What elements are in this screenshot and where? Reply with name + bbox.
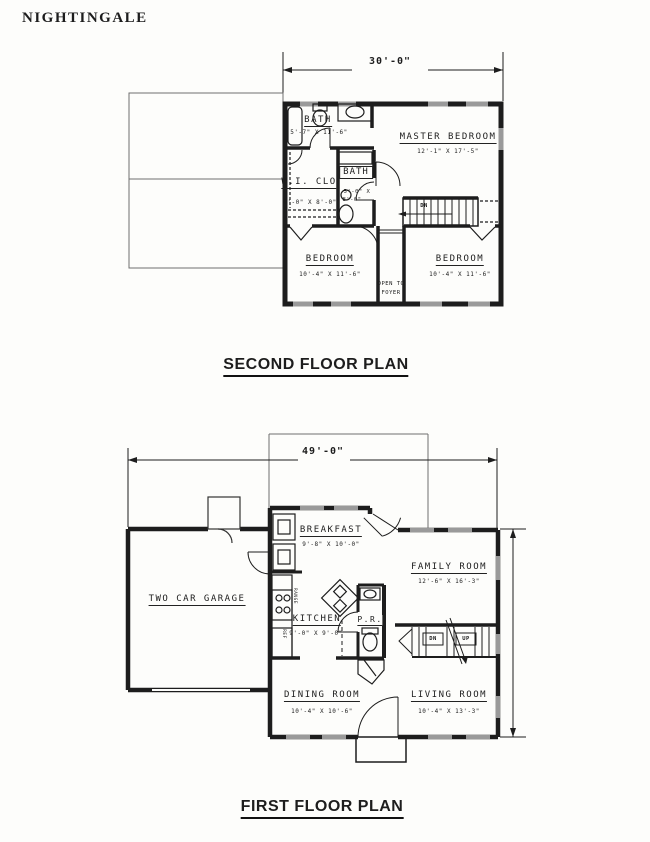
breakfast-label: BREAKFAST [300,525,362,537]
first-floor-width-dim-text: 49'-0" [302,446,344,457]
first-floor-width-dimension [128,448,497,528]
powder-room-label: P.R. [357,615,382,626]
bedroom-left-label: BEDROOM [306,254,354,266]
floor-plan-sheet: NIGHTINGALE 30'-0" BATH 5'-7" X 11'-6" M… [0,0,650,842]
dining-room-dim: 10'-4" X 10'-6" [291,708,353,715]
garage-vestibule [208,497,240,543]
garage-walls [128,529,270,690]
island-sink [322,580,359,617]
garage-entry-door [248,552,270,574]
upper-storey-outline [269,434,428,530]
breakfast-appliances [273,514,295,570]
family-room-dim: 12'-6" X 16'-3" [418,578,480,585]
family-room-label: FAMILY ROOM [411,562,487,574]
entry-closet [358,660,384,684]
master-bedroom-label: MASTER BEDROOM [400,132,497,144]
lower-roof-outline [129,93,283,268]
bedroom-right-label: BEDROOM [436,254,484,266]
stoop [356,737,406,762]
master-bedroom-dim: 12'-1" X 17'-5" [417,148,479,155]
sheet-title: NIGHTINGALE [22,10,148,27]
second-floor-caption: SECOND FLOOR PLAN [223,356,408,377]
garage-label: TWO CAR GARAGE [149,594,246,606]
bath1-dim: 5'-7" X 11'-6" [290,129,348,136]
second-floor-stairs [398,198,478,226]
walkin-closet-dim: 6'-0" X 8'-0" [283,199,336,206]
foyer-note-line1: OPEN TO [378,281,405,287]
first-floor-dn-label: DN [429,636,437,642]
breakfast-dim: 9'-8" X 10'-0" [302,541,360,548]
range [272,590,292,620]
second-floor-width-dim-text: 30'-0" [369,56,411,67]
dining-room-label: DINING ROOM [284,690,360,702]
living-room-dim: 10'-4" X 13'-3" [418,708,480,715]
kitchen-dim: 9'-0" X 9'-0" [289,630,342,637]
walkin-closet-label: W.I. CLO [281,177,336,189]
bath2-dim-line1: 5'-0" X [344,189,371,195]
first-floor-depth-dimension [500,529,526,737]
bedroom-left-dim: 10'-4" X 11'-6" [299,271,361,278]
first-floor-up-label: UP [462,636,470,642]
living-room-label: LIVING ROOM [411,690,487,702]
second-floor-door-swings [288,128,495,250]
bathtub [288,107,302,145]
front-door [358,697,398,737]
bedroom-right-dim: 10'-4" X 11'-6" [429,271,491,278]
first-floor-stairs [395,618,498,664]
second-floor-dn-label: DN [420,203,428,209]
bath2-dim-line2: 8'-0" [342,197,361,203]
foyer-note-line2: FOYER [381,290,400,296]
bath1-label: BATH [304,115,332,127]
foyer-railing [378,230,404,233]
sink [346,106,364,118]
ref-label: REF [281,629,286,639]
bath2-label: BATH [339,166,373,179]
range-label: RANGE [292,588,297,604]
corner-door [364,499,403,538]
kitchen-label: KITCHEN [293,614,341,626]
toilet-2 [339,205,353,223]
vanity-2 [339,152,372,164]
first-floor-caption: FIRST FLOOR PLAN [241,798,404,819]
